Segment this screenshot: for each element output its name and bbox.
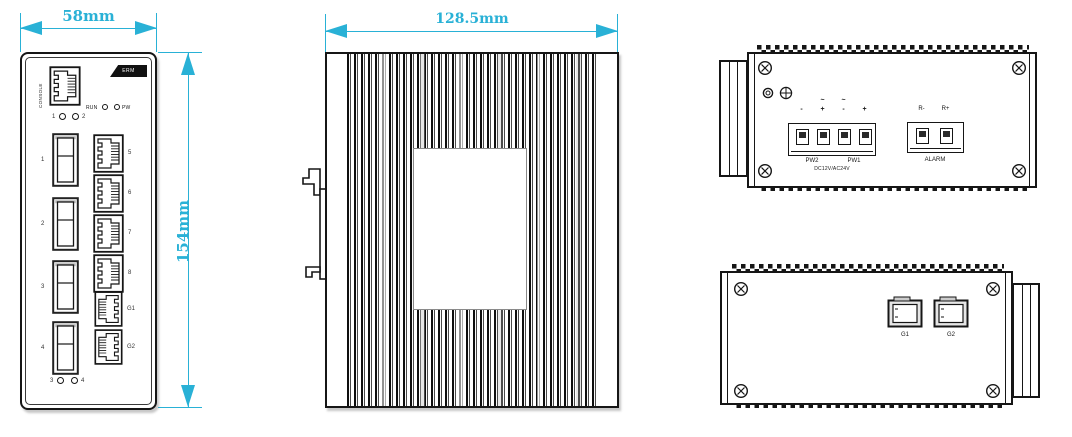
side-label-plate (413, 148, 527, 310)
front-height-dimension-label: 154mm (176, 193, 191, 263)
sfp-cage-g2-icon (933, 296, 969, 328)
sfp-port3-label: 3 (41, 284, 44, 290)
console-rj45-port-icon (47, 66, 83, 106)
bottom-chassis (720, 271, 1013, 405)
terminal-base-line (910, 148, 961, 149)
pw2-label: PW2 (797, 158, 827, 165)
din-mount-block (719, 60, 748, 177)
corner-screw-icon (1011, 60, 1027, 76)
alarm-terminal-pin (916, 128, 929, 144)
uplink-g2-label: G2 (127, 344, 135, 350)
corner-screw-icon (985, 281, 1001, 297)
corner-screw-icon (757, 163, 773, 179)
front-width-extension-line-left (20, 13, 21, 52)
bottom-view: G1 G2 (700, 215, 1072, 437)
chassis-screw-icon (762, 87, 774, 99)
dimension-arrow-left-icon (20, 21, 42, 35)
sfp-port4-label: 4 (41, 345, 44, 351)
din-mount-block (1012, 283, 1040, 398)
run-led-label: RUN (86, 105, 97, 111)
led2-label: 2 (82, 114, 85, 120)
dimension-arrow-down-icon (181, 385, 195, 407)
corner-screw-icon (985, 383, 1001, 399)
side-width-extension-line-right (617, 14, 618, 52)
sfp-port2-label: 2 (41, 221, 44, 227)
led4-label: 4 (81, 378, 84, 384)
led2-icon (72, 113, 79, 120)
uplink-g1-port-icon (93, 291, 124, 327)
rj45-port7-icon (93, 214, 124, 253)
polarity-minus: - (797, 106, 807, 113)
side-width-dimension-line (325, 31, 618, 32)
front-view: 58mm 154mm CONSOLE ERM RUN PW 1 2 (0, 0, 220, 437)
rj45-port8-label: 8 (128, 270, 131, 276)
voltage-label: DC12V/AC24V (787, 166, 877, 172)
front-width-extension-line-right (156, 13, 157, 52)
pw-led-label: PW (122, 105, 130, 111)
alarm-terminal-block (907, 122, 964, 153)
power-terminal-pin (859, 129, 872, 145)
power-terminal-block (788, 123, 876, 156)
sfp-slot3-icon (52, 260, 79, 314)
rj45-port6-label: 6 (128, 190, 131, 196)
sfp-slot2-icon (52, 197, 79, 251)
bottom-g2-label: G2 (936, 332, 966, 339)
dimension-arrow-right-icon (135, 21, 157, 35)
sfp-cage-g1-icon (887, 296, 923, 328)
mechanical-drawing-canvas: 58mm 154mm CONSOLE ERM RUN PW 1 2 (0, 0, 1072, 437)
side-width-dimension-label: 128.5mm (325, 12, 619, 26)
polarity-plus: + (818, 106, 828, 113)
ac-mark: ~ (839, 97, 849, 104)
power-terminal-pin (838, 129, 851, 145)
dimension-arrow-right-icon (596, 24, 618, 38)
led3-label: 3 (50, 378, 53, 384)
sfp-slot1-icon (52, 133, 79, 187)
power-terminal-pin (817, 129, 830, 145)
sfp-port1-label: 1 (41, 157, 44, 163)
alarm-rplus-label: R+ (938, 106, 954, 113)
terminal-base-line (791, 151, 873, 152)
dimension-arrow-left-icon (325, 24, 347, 38)
corner-screw-icon (757, 60, 773, 76)
alarm-terminal-pin (940, 128, 953, 144)
corner-screw-icon (1011, 163, 1027, 179)
alarm-label: ALARM (905, 157, 965, 164)
polarity-plus: + (860, 106, 870, 113)
rj45-port5-label: 5 (128, 150, 131, 156)
uplink-g2-port-icon (93, 329, 124, 365)
rj45-port5-icon (93, 134, 124, 173)
console-port-label: CONSOLE (39, 68, 44, 108)
ac-mark: ~ (818, 97, 828, 104)
side-width-extension-line-left (325, 14, 326, 52)
alarm-rminus-label: R- (914, 106, 930, 113)
rj45-port7-label: 7 (128, 230, 131, 236)
side-view: 128.5mm (280, 0, 640, 437)
rj45-port8-icon (93, 254, 124, 293)
front-height-extension-line-bottom (158, 407, 202, 408)
led1-icon (59, 113, 66, 120)
led1-label: 1 (52, 114, 55, 120)
front-height-extension-line-top (158, 52, 202, 53)
led4-icon (71, 377, 78, 384)
top-view: ~ ~ - + - + PW2 PW1 DC12V/AC24V R- R+ AL… (700, 0, 1072, 215)
led3-icon (57, 377, 64, 384)
power-terminal-pin (796, 129, 809, 145)
pw1-label: PW1 (839, 158, 869, 165)
corner-screw-icon (733, 281, 749, 297)
polarity-minus: - (839, 106, 849, 113)
pw-led-icon (114, 104, 120, 110)
uplink-g1-label: G1 (127, 306, 135, 312)
bottom-g1-label: G1 (890, 332, 920, 339)
run-led-icon (102, 104, 108, 110)
rj45-port6-icon (93, 174, 124, 213)
corner-screw-icon (733, 383, 749, 399)
sfp-slot4-icon (52, 321, 79, 375)
grounding-screw-icon (779, 86, 793, 100)
dimension-arrow-up-icon (181, 53, 195, 75)
